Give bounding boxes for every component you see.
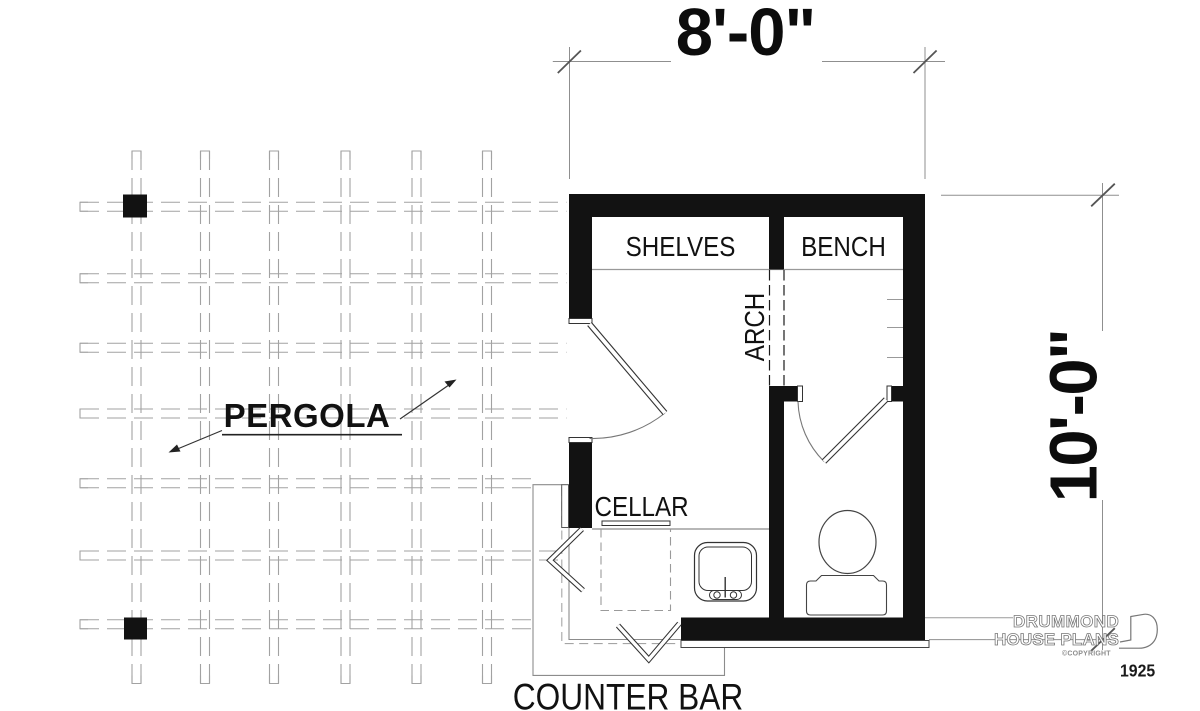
svg-text:©COPYRIGHT: ©COPYRIGHT — [1062, 650, 1111, 658]
svg-text:1925: 1925 — [1120, 661, 1155, 681]
svg-text:PERGOLA: PERGOLA — [224, 397, 391, 434]
svg-text:10'-0": 10'-0" — [1037, 330, 1112, 503]
svg-text:HOUSE PLANS: HOUSE PLANS — [994, 630, 1119, 649]
svg-text:CELLAR: CELLAR — [595, 493, 689, 523]
svg-text:SHELVES: SHELVES — [626, 232, 736, 262]
svg-text:COUNTER BAR: COUNTER BAR — [513, 677, 744, 711]
svg-text:DRUMMOND: DRUMMOND — [1013, 612, 1119, 631]
svg-text:8'-0": 8'-0" — [676, 0, 816, 70]
svg-text:BENCH: BENCH — [801, 232, 886, 262]
svg-text:ARCH: ARCH — [740, 293, 770, 362]
